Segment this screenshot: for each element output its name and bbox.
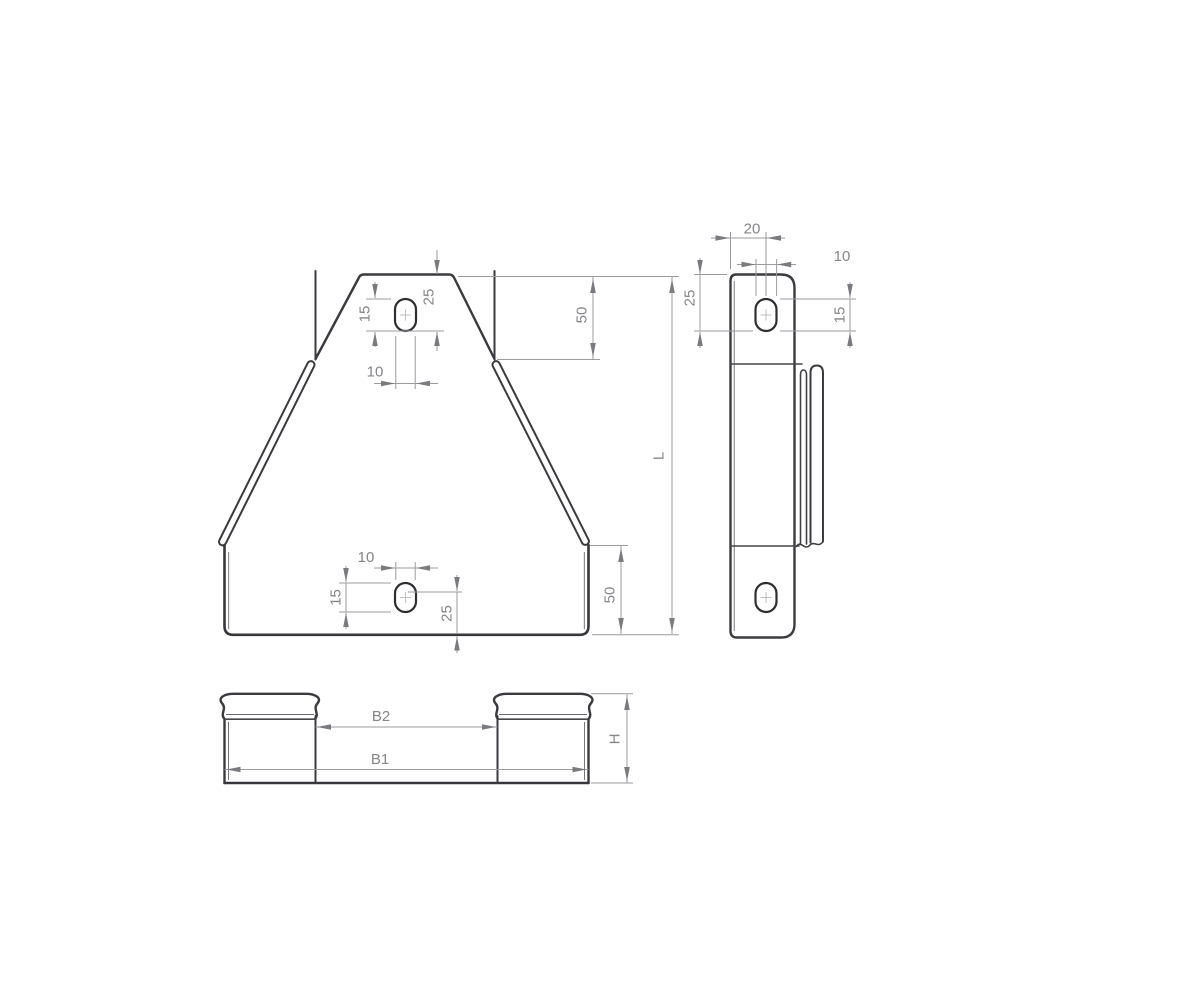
top-plate-edge [316, 275, 495, 360]
dim-front-bottom-hole-length: 15 [328, 566, 392, 629]
dim-bottom-outer-width: B1 [225, 751, 589, 770]
dim-label-side-hole-center: 20 [744, 221, 761, 238]
front-view [218, 271, 590, 635]
dim-front-bottom-hole-width: 10 [358, 549, 438, 580]
dim-label-side-hole-width: 10 [834, 248, 851, 265]
technical-drawing: 25 15 10 50 [0, 0, 1200, 1000]
slot-center-mark [761, 310, 772, 604]
dim-bottom-height: H [591, 694, 633, 783]
dim-bottom-inner-width: B2 [316, 708, 498, 727]
dim-front-top-end-depth: 50 [458, 277, 679, 360]
dim-label-inner-width: B2 [372, 708, 390, 725]
slot-center-mark [400, 310, 411, 604]
dim-label-front-bottom-length: 15 [328, 589, 345, 606]
dim-label-side-hole-length: 15 [832, 307, 849, 324]
right-flange [491, 360, 590, 546]
dim-side-hole-center: 20 [711, 221, 785, 297]
side-flange-outer [811, 366, 824, 543]
drawing-page: 25 15 10 50 [0, 0, 1200, 1000]
front-view-dimensions: 25 15 10 50 [328, 250, 680, 653]
dim-label-front-top-depth: 50 [574, 307, 591, 324]
side-flange-inner [801, 370, 807, 544]
side-view-dimensions: 20 10 25 15 [682, 221, 857, 349]
lower-body-outline [225, 545, 589, 635]
dim-label-side-hole-offset: 25 [682, 290, 699, 307]
dim-front-overall-length: L [592, 277, 679, 635]
dim-label-front-bottom-depth: 50 [602, 587, 619, 604]
dim-side-hole-offset: 25 [682, 258, 754, 348]
bottom-view-dimensions: B2 B1 H [225, 694, 634, 783]
dim-label-front-top-length: 15 [357, 306, 374, 323]
dim-front-top-hole-offset: 25 [409, 250, 444, 351]
dim-front-top-hole-width: 10 [367, 336, 438, 389]
left-flange [218, 360, 316, 547]
dim-label-front-top-width: 10 [367, 364, 384, 381]
dim-front-top-hole-length: 15 [357, 282, 410, 347]
dim-label-front-length: L [651, 452, 668, 460]
dim-label-height: H [607, 734, 624, 745]
dim-front-bottom-end-depth: 50 [590, 546, 628, 635]
dim-side-hole-length: 15 [780, 282, 856, 348]
dim-label-front-bottom-width: 10 [358, 549, 375, 566]
dim-label-outer-width: B1 [371, 751, 389, 768]
dim-label-front-top-offset: 25 [421, 289, 438, 306]
side-view [731, 275, 824, 638]
dim-label-front-bottom-offset: 25 [439, 605, 456, 622]
dim-front-bottom-hole-offset: 25 [408, 575, 462, 653]
